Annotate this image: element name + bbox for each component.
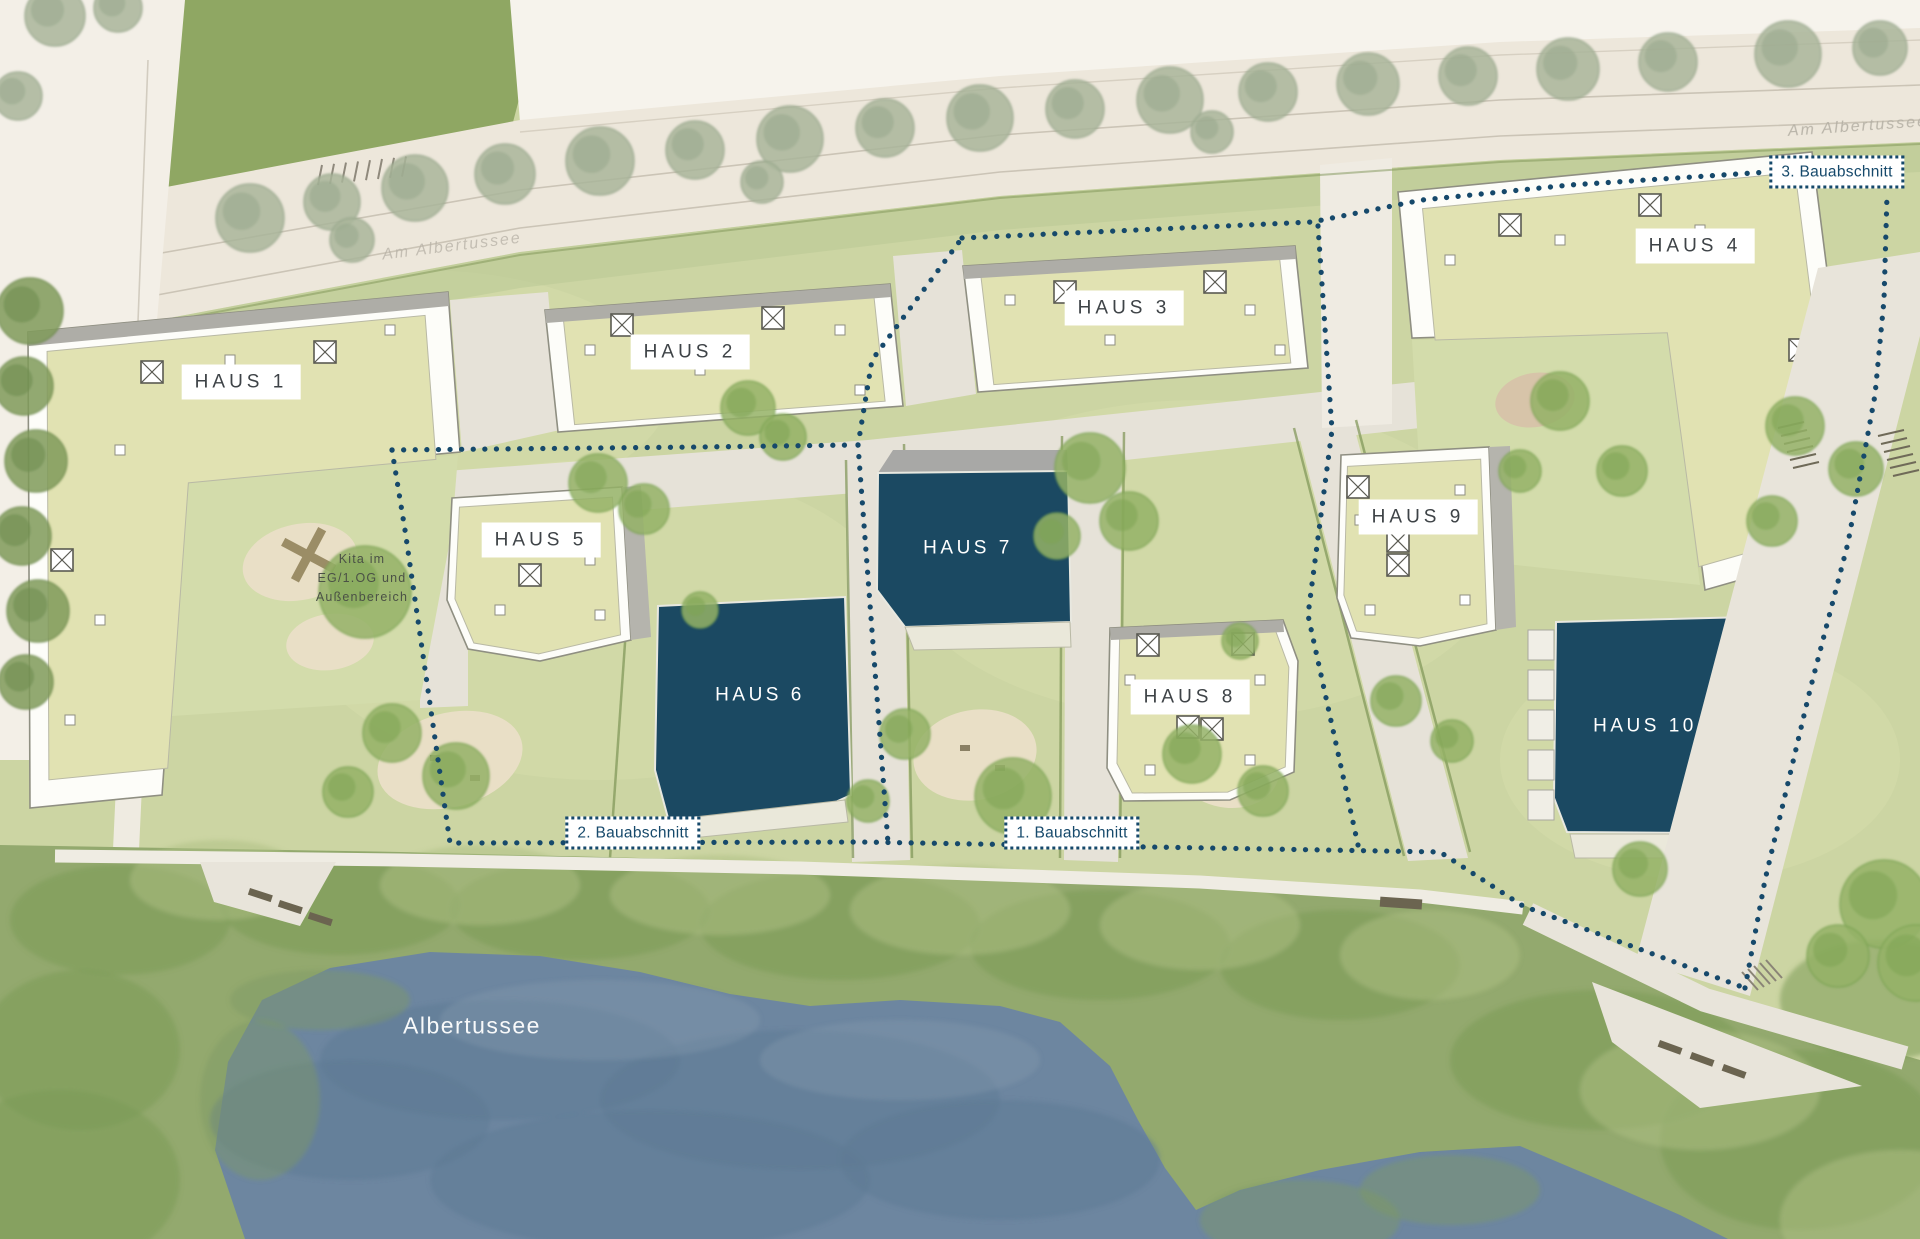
label-haus-7[interactable]: HAUS 7 (910, 531, 1026, 566)
label-haus-2[interactable]: HAUS 2 (631, 335, 750, 370)
label-haus-3[interactable]: HAUS 3 (1065, 291, 1184, 326)
label-phase-3: 3. Bauabschnitt (1769, 155, 1904, 188)
label-haus-9[interactable]: HAUS 9 (1359, 500, 1478, 535)
label-haus-5[interactable]: HAUS 5 (482, 523, 601, 558)
site-plan-canvas (0, 0, 1920, 1239)
kita-line-1: Kita im (316, 550, 408, 569)
label-haus-8[interactable]: HAUS 8 (1131, 680, 1250, 715)
label-haus-4[interactable]: HAUS 4 (1636, 229, 1755, 264)
label-haus-6[interactable]: HAUS 6 (702, 678, 818, 713)
label-lake-albertussee: Albertussee (403, 1013, 541, 1040)
label-kita: Kita im EG/1.OG und Außenbereich (316, 550, 408, 606)
site-plan: HAUS 1 HAUS 2 HAUS 3 HAUS 4 HAUS 5 HAUS … (0, 0, 1920, 1239)
kita-line-2: EG/1.OG und (316, 569, 408, 588)
label-haus-10[interactable]: HAUS 10 (1580, 709, 1710, 744)
label-phase-1: 1. Bauabschnitt (1004, 816, 1139, 849)
label-haus-1[interactable]: HAUS 1 (182, 365, 301, 400)
kita-line-3: Außenbereich (316, 587, 408, 606)
label-phase-2: 2. Bauabschnitt (565, 816, 700, 849)
